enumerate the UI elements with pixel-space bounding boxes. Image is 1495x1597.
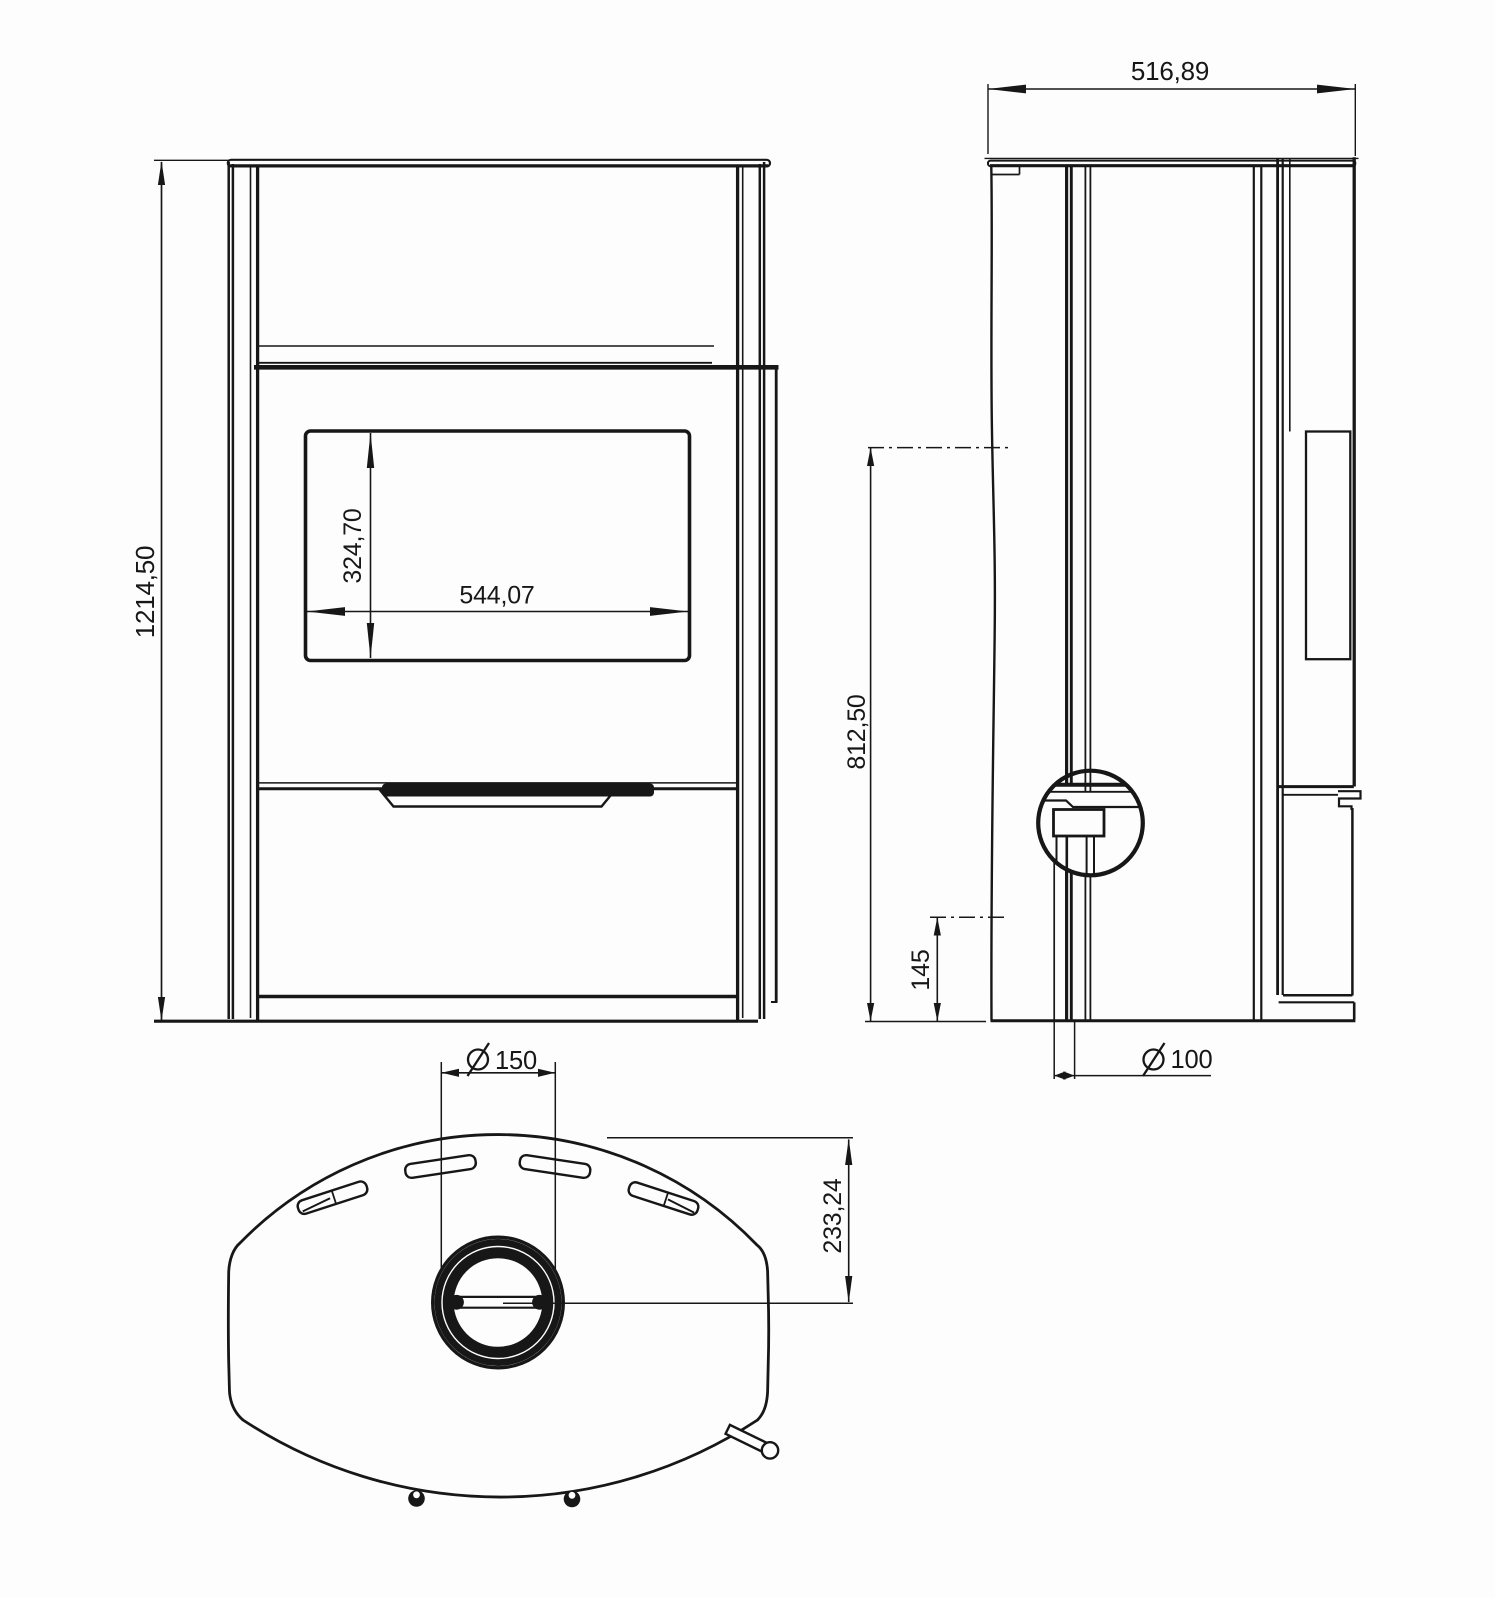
svg-text:812,50: 812,50 <box>843 694 871 769</box>
svg-text:233,24: 233,24 <box>819 1178 847 1254</box>
svg-text:516,89: 516,89 <box>1131 56 1209 86</box>
svg-text:145: 145 <box>907 949 935 990</box>
svg-text:100: 100 <box>1171 1046 1213 1074</box>
svg-text:544,07: 544,07 <box>459 582 534 610</box>
svg-text:150: 150 <box>495 1047 537 1075</box>
svg-text:324,70: 324,70 <box>339 508 367 583</box>
svg-text:1214,50: 1214,50 <box>130 546 160 639</box>
